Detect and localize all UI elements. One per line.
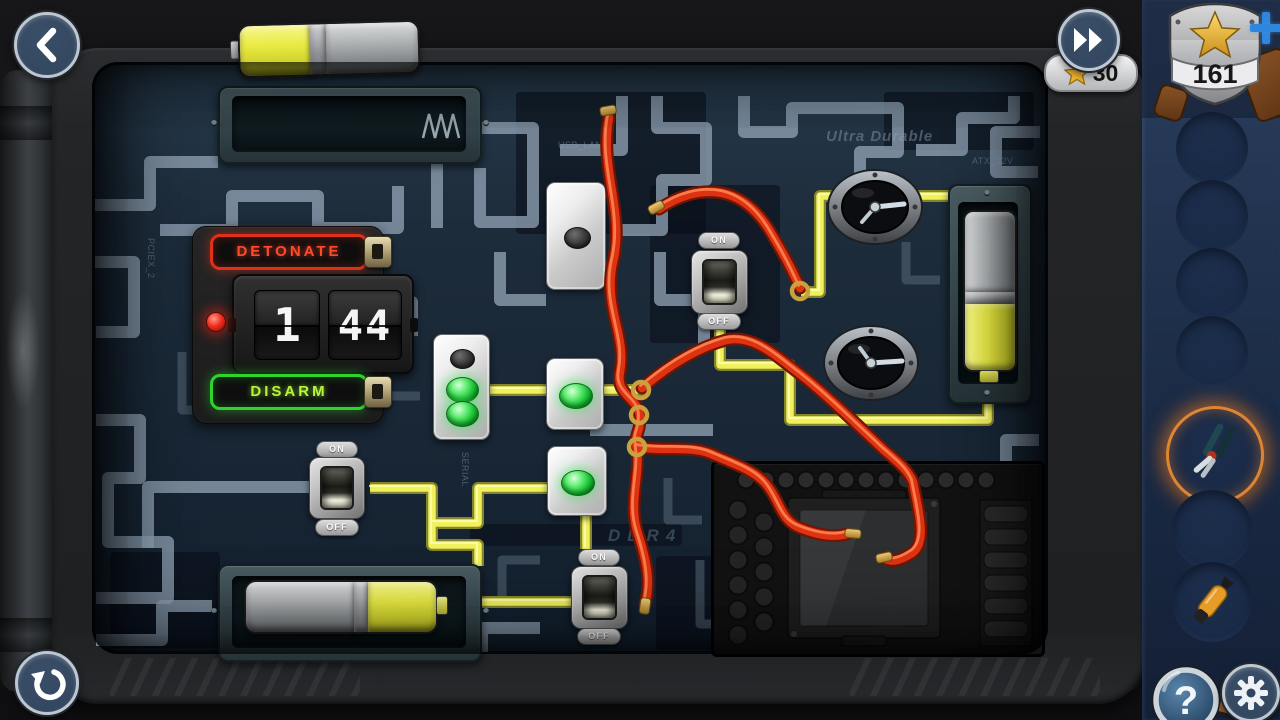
battery-silver-half xyxy=(963,210,1017,294)
battery-holder-empty[interactable] xyxy=(218,86,482,164)
led-on xyxy=(561,470,595,496)
switch-on-label: ON xyxy=(578,549,620,566)
holder-screw xyxy=(211,608,217,614)
led-plate-triple[interactable] xyxy=(433,334,490,440)
sealant-tool-icon xyxy=(1172,562,1252,642)
question-mark: ? xyxy=(1174,679,1198,720)
chevron-left-icon xyxy=(27,23,67,67)
holder-screw xyxy=(211,120,217,126)
holder-screw xyxy=(483,120,489,126)
battery-silver-half xyxy=(325,20,420,76)
battery-holder-bottom[interactable] xyxy=(218,564,482,662)
battery-terminal xyxy=(436,596,448,615)
battery-yellow-half xyxy=(237,22,312,78)
clip-notch xyxy=(372,384,383,399)
disarm-clip xyxy=(364,376,392,408)
back-button[interactable] xyxy=(14,12,80,78)
inventory-slot-empty[interactable] xyxy=(1176,248,1248,320)
toggle-switch-bottom[interactable] xyxy=(571,566,628,629)
holder-screw xyxy=(483,608,489,614)
board-chip xyxy=(656,556,712,650)
plus-icon xyxy=(1250,24,1280,32)
switch-rocker xyxy=(702,259,737,305)
led-plate-single[interactable] xyxy=(547,446,607,516)
led-plate-off[interactable] xyxy=(546,182,606,290)
glare-streak xyxy=(850,658,1100,696)
cpu-socket-area xyxy=(712,462,1044,656)
clip-notch xyxy=(372,244,383,259)
battery-holder-right[interactable] xyxy=(948,184,1032,404)
game-screen: USB_LAN Ultra Durable ATX_12V SERIAL DDR… xyxy=(0,0,1280,720)
battery-band xyxy=(354,580,368,634)
inventory-slot-empty[interactable] xyxy=(1172,490,1252,570)
cylinder-glare xyxy=(6,290,40,410)
led-on xyxy=(446,401,479,427)
glare-streak xyxy=(110,658,360,696)
led-on xyxy=(446,377,479,403)
board-label-pcie: PCIEX_2 xyxy=(146,238,156,308)
battery-band xyxy=(963,292,1017,304)
battery-terminal xyxy=(979,370,999,383)
badge-score: 161 xyxy=(1192,59,1237,89)
board-label-ddr: DDR4 xyxy=(608,526,682,546)
battery-band xyxy=(309,22,326,76)
cpu-detail xyxy=(714,464,1042,654)
board-chip xyxy=(110,552,220,648)
inventory-slot-tool[interactable] xyxy=(1172,562,1252,642)
holder-screw xyxy=(984,390,990,396)
dial-gauge-top[interactable] xyxy=(826,168,924,246)
toggle-switch-left[interactable] xyxy=(309,457,365,519)
countdown-clock: 1 44 xyxy=(232,274,414,374)
pliers-icon xyxy=(1169,409,1261,501)
skip-button[interactable] xyxy=(1058,9,1120,71)
add-stars-button[interactable] xyxy=(1250,12,1280,44)
restart-button[interactable] xyxy=(15,651,79,715)
board-label-atx: ATX_12V xyxy=(972,156,1013,166)
inventory-slot-empty[interactable] xyxy=(1176,112,1248,184)
switch-rocker xyxy=(320,466,354,510)
timer-seconds: 44 xyxy=(328,290,402,360)
settings-button[interactable] xyxy=(1222,664,1280,720)
led-off xyxy=(450,349,475,369)
switch-off-label: OFF xyxy=(697,313,741,330)
detonate-clip xyxy=(364,236,392,268)
battery-silver-half xyxy=(244,580,356,634)
gear-icon xyxy=(1234,676,1268,710)
switch-off-label: OFF xyxy=(315,519,359,536)
clock-hinge xyxy=(228,318,236,332)
armed-led xyxy=(206,312,226,332)
dial-gauge-bottom[interactable] xyxy=(822,324,920,402)
battery-yellow-half xyxy=(368,580,438,634)
fast-forward-icon xyxy=(1072,26,1106,54)
switch-rocker xyxy=(582,575,617,620)
restart-arrow-icon xyxy=(27,663,67,703)
toggle-switch-top[interactable] xyxy=(691,250,748,314)
inventory-slot-empty[interactable] xyxy=(1176,316,1248,388)
led-plate-single[interactable] xyxy=(546,358,604,430)
switch-on-label: ON xyxy=(698,232,740,249)
loose-battery[interactable] xyxy=(229,15,431,80)
led-off xyxy=(564,227,591,249)
holder-spring xyxy=(420,104,464,146)
led-on xyxy=(559,383,593,409)
inventory-slot-empty[interactable] xyxy=(1176,180,1248,252)
board-label-serial: SERIAL xyxy=(460,452,470,522)
timer-minutes: 1 xyxy=(254,290,320,360)
disarm-button[interactable]: DISARM xyxy=(210,374,368,410)
battery-yellow-half xyxy=(963,304,1017,372)
holder-screw xyxy=(984,190,990,196)
board-label-brand: Ultra Durable xyxy=(826,128,933,145)
detonate-button[interactable]: DETONATE xyxy=(210,234,368,270)
clock-hinge xyxy=(410,318,418,332)
switch-on-label: ON xyxy=(316,441,358,458)
switch-off-label: OFF xyxy=(577,628,621,645)
board-label-usb: USB_LAN xyxy=(558,140,603,150)
